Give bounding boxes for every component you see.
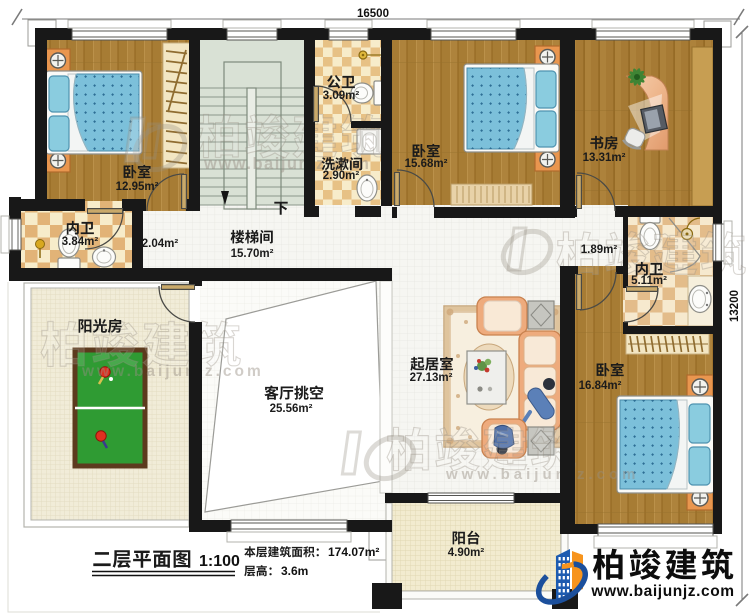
svg-text:3.84m²: 3.84m² bbox=[62, 236, 99, 248]
svg-text:1:100: 1:100 bbox=[199, 553, 240, 570]
svg-text:13200: 13200 bbox=[729, 290, 741, 322]
svg-text:16.84m²: 16.84m² bbox=[579, 380, 622, 392]
svg-text:13.31m²: 13.31m² bbox=[583, 152, 626, 164]
svg-text:15.68m²: 15.68m² bbox=[405, 158, 448, 170]
svg-text:2.04m²: 2.04m² bbox=[142, 238, 179, 250]
svg-text:3.6m: 3.6m bbox=[281, 564, 308, 578]
svg-text:25.56m²: 25.56m² bbox=[270, 403, 313, 415]
svg-text:27.13m²: 27.13m² bbox=[410, 372, 453, 384]
svg-text:15.70m²: 15.70m² bbox=[231, 248, 274, 260]
svg-text:www.baijunjz.com: www.baijunjz.com bbox=[81, 363, 264, 380]
svg-text:www.baijunjz.com: www.baijunjz.com bbox=[590, 583, 734, 600]
svg-text:174.07m²: 174.07m² bbox=[328, 545, 379, 559]
svg-text:5.11m²: 5.11m² bbox=[631, 275, 667, 287]
svg-text:www.baijunjz.com: www.baijunjz.com bbox=[445, 466, 639, 483]
svg-text:4.90m²: 4.90m² bbox=[448, 547, 485, 559]
svg-text:12.95m²: 12.95m² bbox=[116, 181, 159, 193]
svg-text:16500: 16500 bbox=[357, 8, 389, 20]
svg-text:3.09m²: 3.09m² bbox=[323, 90, 360, 102]
svg-text:1.89m²: 1.89m² bbox=[581, 244, 618, 256]
svg-text:2.90m²: 2.90m² bbox=[323, 170, 360, 182]
